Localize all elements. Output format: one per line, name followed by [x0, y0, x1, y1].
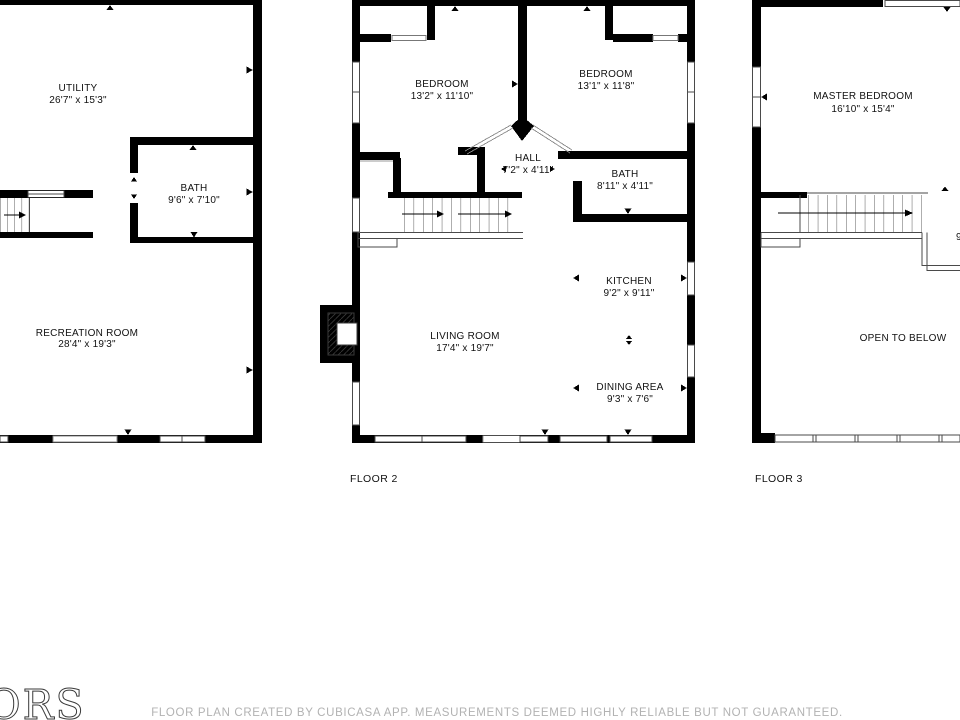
closet-door — [392, 36, 426, 41]
floor3-plan: 9 MASTER BEDROOM 16'10" x 15'4" OPEN TO … — [752, 0, 960, 485]
room-dims-bath2: 8'11" x 4'11" — [597, 181, 653, 192]
wall-segment — [573, 214, 695, 222]
floor1-windows — [0, 191, 205, 442]
window — [688, 262, 695, 295]
realtor-logo: ORS — [0, 681, 86, 720]
closet-door — [653, 36, 678, 41]
wall-segment — [0, 232, 93, 238]
window — [160, 436, 205, 442]
window — [688, 345, 695, 377]
room-dims-kitchen: 9'2" x 9'11" — [604, 288, 655, 299]
floor3-stairs — [761, 193, 960, 271]
dimension-arrow-icon — [247, 367, 254, 374]
room-label-kitchen: KITCHEN — [606, 276, 652, 287]
dimension-arrow-icon — [584, 6, 591, 11]
stair-treads — [401, 198, 515, 232]
window — [353, 382, 360, 425]
room-label-recreation: RECREATION ROOM — [36, 328, 138, 339]
window — [375, 436, 422, 442]
wall-segment — [253, 0, 262, 443]
patio-door-opening — [53, 436, 117, 442]
footer-disclaimer: FLOOR PLAN CREATED BY CUBICASA APP. MEAS… — [151, 707, 843, 719]
window — [688, 62, 695, 123]
dimension-arrow-icon — [625, 430, 632, 436]
wall-junction — [511, 116, 534, 141]
wall-segment — [752, 0, 761, 443]
dimension-arrow-icon — [944, 7, 951, 12]
clipped-dimension-text: 9 — [956, 232, 960, 243]
window — [0, 436, 8, 442]
window — [610, 436, 652, 442]
floorplan-page: UTILITY 26'7" x 15'3" BATH 9'6" x 7'10" … — [0, 0, 960, 720]
dimension-arrow-icon — [131, 195, 137, 200]
floorplan-canvas: UTILITY 26'7" x 15'3" BATH 9'6" x 7'10" … — [0, 0, 960, 720]
wall-segment — [130, 145, 138, 173]
room-dims-bedroom1: 13'2" x 11'10" — [411, 91, 474, 102]
wall-segment — [0, 0, 262, 5]
floor1-walls — [0, 0, 262, 443]
dimension-arrow-icon — [107, 5, 114, 10]
window — [560, 436, 607, 442]
room-label-bedroom2: BEDROOM — [579, 69, 632, 80]
wall-segment — [518, 0, 527, 120]
room-dims-living: 17'4" x 19'7" — [436, 343, 494, 354]
dimension-arrow-icon — [452, 6, 459, 11]
room-label-master: MASTER BEDROOM — [813, 91, 913, 102]
wall-segment — [752, 433, 775, 443]
floor1-plan: UTILITY 26'7" x 15'3" BATH 9'6" x 7'10" … — [0, 0, 262, 443]
dimension-arrow-icon — [190, 145, 197, 150]
wall-segment — [358, 152, 400, 160]
floor2-title: FLOOR 2 — [350, 473, 398, 485]
room-dims-hall: 7'2" x 4'11" — [503, 165, 554, 176]
dimension-arrow-icon — [942, 187, 949, 192]
room-label-living: LIVING ROOM — [430, 331, 499, 342]
window-band — [775, 435, 960, 442]
dimension-arrow-icon — [247, 189, 254, 196]
room-label-hall: HALL — [515, 153, 541, 164]
room-dims-recreation: 28'4" x 19'3" — [58, 339, 116, 350]
dimension-arrow-icon — [542, 430, 549, 436]
dimension-arrow-icon — [761, 94, 767, 101]
floor2-plan: BEDROOM 13'2" x 11'10" BEDROOM 13'1" x 1… — [320, 0, 695, 485]
dimension-arrow-icon — [191, 232, 198, 238]
floor2-stairs — [358, 161, 523, 247]
dimension-arrow-icon — [626, 335, 632, 339]
closet-wall — [605, 0, 613, 40]
wall-segment — [130, 237, 262, 243]
closet-wall — [358, 34, 391, 42]
room-label-bedroom1: BEDROOM — [415, 79, 468, 90]
closet-wall — [678, 34, 687, 42]
stair-outline — [358, 233, 523, 248]
floor3-title: FLOOR 3 — [755, 473, 803, 485]
room-dims-dining: 9'3" x 7'6" — [607, 394, 653, 405]
room-label-open-to-below: OPEN TO BELOW — [860, 333, 947, 344]
closet-wall — [613, 34, 653, 42]
dimension-arrow-icon — [681, 385, 687, 392]
wall-segment — [477, 147, 485, 198]
room-label-dining: DINING AREA — [596, 382, 663, 393]
wall-segment — [130, 137, 262, 145]
dimension-arrow-icon — [573, 275, 579, 282]
dimension-arrow-icon — [247, 67, 254, 74]
wall-segment — [752, 0, 883, 7]
window — [885, 1, 960, 7]
room-label-bath2: BATH — [612, 169, 639, 180]
room-dims-bath: 9'6" x 7'10" — [168, 195, 220, 206]
floor1-dimension-markers — [107, 5, 254, 435]
room-dims-bedroom2: 13'1" x 11'8" — [578, 81, 635, 92]
patio-door-opening — [483, 436, 520, 443]
room-label-bath: BATH — [181, 183, 208, 194]
dimension-arrow-icon — [512, 81, 518, 88]
floor1-stairs — [0, 198, 30, 232]
fireplace-firebox — [337, 323, 357, 345]
window — [353, 198, 360, 232]
wall-segment — [0, 435, 262, 443]
window — [422, 436, 466, 442]
wall-segment — [558, 151, 695, 159]
room-dims-master: 16'10" x 15'4" — [831, 104, 894, 115]
dimension-arrow-icon — [573, 385, 579, 392]
room-label-utility: UTILITY — [59, 83, 98, 94]
dimension-arrow-icon — [681, 275, 687, 282]
dimension-arrow-icon — [625, 209, 632, 215]
room-dims-utility: 26'7" x 15'3" — [49, 95, 107, 106]
closet-wall — [427, 0, 435, 40]
stair-outline — [761, 233, 922, 248]
open-area-outline — [922, 233, 960, 266]
window — [520, 436, 548, 442]
window — [353, 62, 360, 123]
dimension-arrow-icon — [131, 177, 137, 182]
dimension-arrow-icon — [626, 341, 632, 345]
dimension-arrow-icon — [125, 430, 132, 436]
wall-segment — [388, 192, 522, 198]
floor2-fireplace — [320, 305, 357, 363]
